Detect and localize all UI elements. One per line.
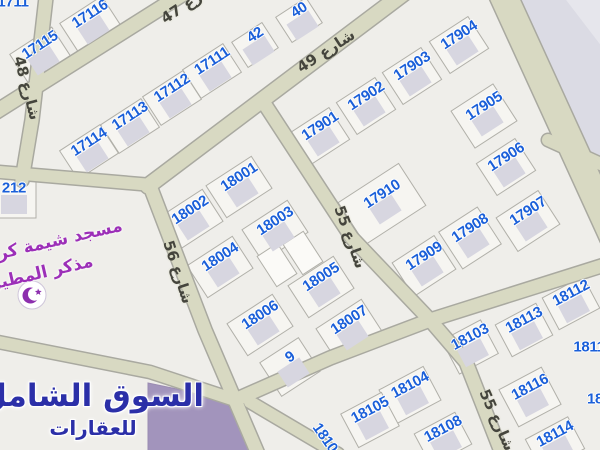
plot-number-label: 17115 <box>19 27 61 63</box>
plot-number-label: 18114 <box>534 417 577 450</box>
plot-number-label: 17904 <box>438 17 481 53</box>
plot-number-label: 17910 <box>361 176 404 212</box>
plot-number-label-partial: 1711 <box>0 0 29 11</box>
plot-number-label: 17903 <box>391 48 434 84</box>
plot-number-label: 17907 <box>507 193 550 229</box>
plot-number-label: 17901 <box>299 108 342 144</box>
plot-number-label: 18108 <box>421 412 464 446</box>
plot-number-label: 18116 <box>509 370 552 404</box>
plot-number-label: 17114 <box>68 124 110 160</box>
mosque-name-line1: مسجد شيمة كر <box>0 216 124 264</box>
street-name-label: شارع 47 <box>158 0 223 27</box>
plot-number-label: 18007 <box>328 302 371 338</box>
plot-number-label: 18001 <box>218 159 261 195</box>
plot-number-label: 17116 <box>69 0 111 32</box>
plot-number-label: 17905 <box>463 88 506 124</box>
plot-number-label: 42 <box>244 23 267 46</box>
plot-number-label: 18112 <box>550 276 593 310</box>
plot-number-label-partial: 18 <box>587 391 600 408</box>
street-name-label: شارع 56 <box>159 238 196 306</box>
plot-number-label: 17908 <box>449 210 492 246</box>
labels-layer: مسجد شيمة كر مذكر المطير 171161711540421… <box>0 0 600 450</box>
plot-number-label: 18006 <box>239 297 282 333</box>
plot-number-label: 17906 <box>485 139 528 175</box>
mosque-name-line2: مذكر المطير <box>0 252 95 295</box>
street-name-label: شارع 48 <box>10 54 44 122</box>
plot-number-label: 17111 <box>191 43 233 78</box>
plot-number-label: 18002 <box>169 192 212 228</box>
plot-number-label: 18104 <box>388 368 431 402</box>
plot-number-label: 18113 <box>503 303 546 337</box>
plot-number-label: 17902 <box>345 78 388 114</box>
plot-number-label: 17909 <box>403 238 446 274</box>
street-name-label: شارع 55 <box>475 386 518 450</box>
plot-number-label: 18004 <box>199 239 242 275</box>
plot-number-label: 9 <box>282 348 298 367</box>
plot-number-label: 18003 <box>254 203 297 239</box>
plot-number-label-partial: 1811 <box>573 339 600 356</box>
map-viewport[interactable]: مسجد شيمة كر مذكر المطير 171161711540421… <box>0 0 600 450</box>
plot-number-label: 212 <box>2 180 26 197</box>
plot-number-label: 17112 <box>151 70 193 106</box>
plot-number-label: 18005 <box>300 259 343 295</box>
street-name-label: شارع 55 <box>330 203 369 271</box>
plot-number-label: 18105 <box>348 393 391 427</box>
plot-number-label-partial: 1810 <box>309 420 341 450</box>
plot-number-label: 18103 <box>448 320 491 354</box>
street-name-label: شارع 49 <box>294 26 359 77</box>
plot-number-label: 17113 <box>109 98 151 134</box>
plot-number-label: 40 <box>288 0 311 22</box>
